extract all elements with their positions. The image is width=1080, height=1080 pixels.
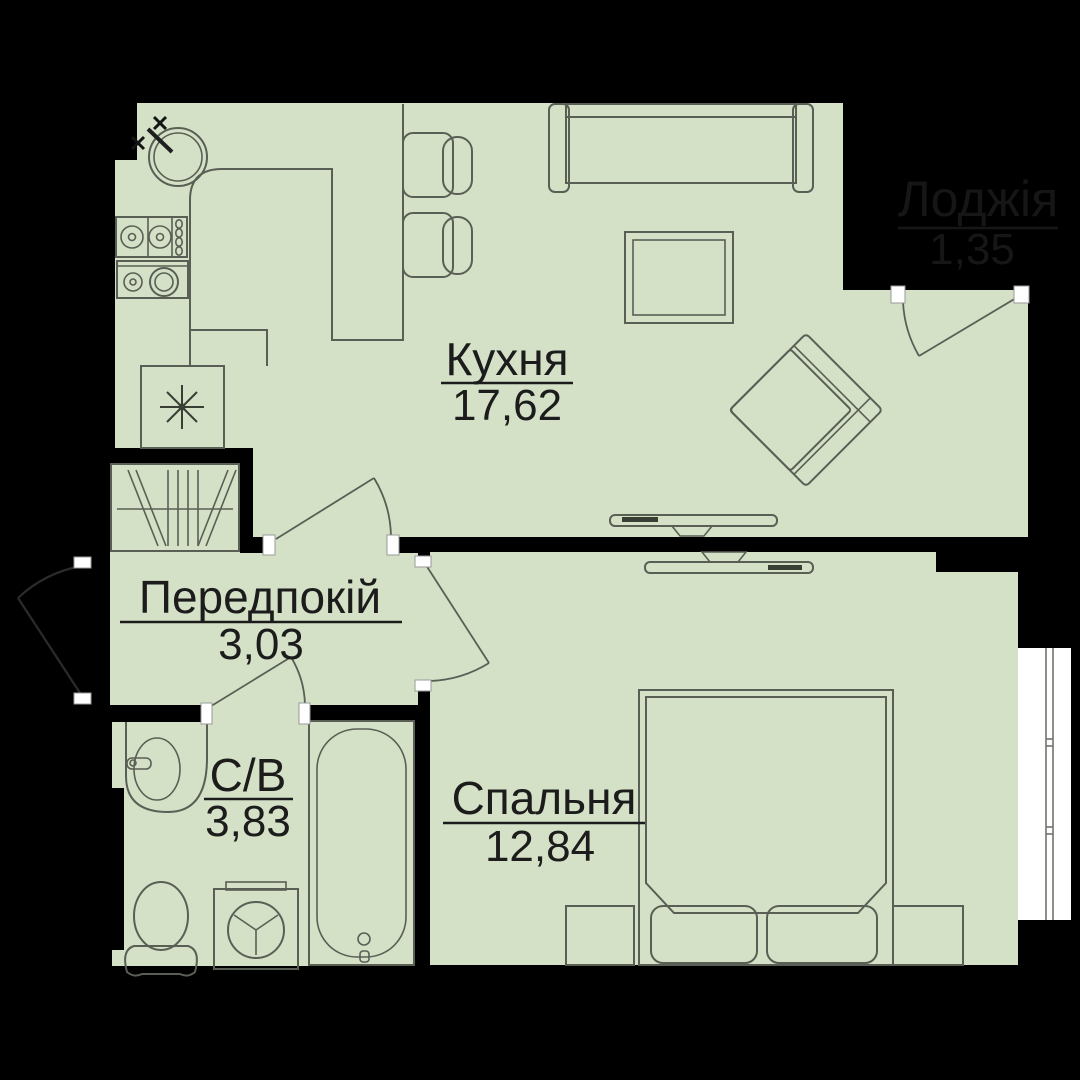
window-icon	[1018, 648, 1071, 920]
bathroom-label: С/В	[210, 749, 287, 801]
bedroom-label: Спальня	[452, 772, 637, 824]
jamb	[299, 703, 310, 724]
kitchen-label-group: Кухня 17,62	[441, 333, 573, 430]
hallway-area-value: 3,03	[218, 620, 304, 669]
kitchen-label: Кухня	[445, 333, 568, 385]
bedroom-area-value: 12,84	[485, 822, 595, 871]
jamb	[891, 286, 905, 303]
jamb	[74, 693, 91, 704]
bathroom-label-group: С/В 3,83	[204, 749, 293, 846]
floor-plan: Лоджія 1,35	[0, 0, 1080, 1080]
floor-plan-canvas: Лоджія 1,35	[0, 0, 1080, 1080]
loggia-room: Лоджія 1,35	[898, 171, 1058, 274]
bathroom-area-value: 3,83	[205, 797, 291, 846]
kitchen-area-value: 17,62	[452, 381, 562, 430]
bedroom-door-gap	[418, 566, 430, 682]
loggia-area-value: 1,35	[929, 225, 1015, 274]
jamb	[263, 535, 275, 555]
jamb	[415, 556, 431, 567]
bathroom-door-gap	[212, 705, 300, 722]
bedroom-floor	[430, 552, 1018, 965]
jamb	[74, 557, 91, 568]
hallway-label: Передпокій	[139, 571, 381, 623]
jamb	[415, 680, 431, 691]
jamb	[201, 703, 212, 724]
entrance-door-swing-icon	[18, 566, 82, 696]
loggia-label: Лоджія	[898, 171, 1058, 227]
jamb	[1014, 286, 1029, 303]
jamb	[387, 535, 399, 555]
kitchen-door-gap	[265, 537, 398, 553]
